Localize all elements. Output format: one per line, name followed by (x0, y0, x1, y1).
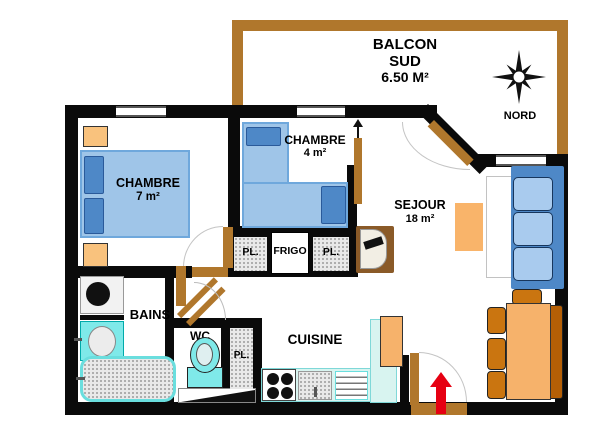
bedroom1-door (223, 227, 233, 268)
dining-table (506, 303, 551, 400)
kitchen-label: CUISINE (283, 333, 347, 348)
wall-bottom (65, 402, 568, 415)
bedroom2-area: 4 m² (283, 147, 347, 159)
nightstand (83, 243, 108, 267)
bathroom-shelf (80, 315, 124, 320)
stove-burner-icon (281, 373, 293, 385)
stove-burner-icon (267, 387, 279, 399)
kitchen-faucet-icon (314, 387, 317, 397)
sink-tap-icon (74, 338, 82, 341)
balcony-door-swing-arc (402, 122, 470, 170)
bedroom1-name: CHAMBRE (108, 177, 188, 191)
bathroom-sink (80, 321, 124, 361)
closet-corridor-label: PL. (228, 350, 255, 361)
toilet-bowl-inner (196, 343, 213, 366)
entrance-door (410, 353, 419, 405)
balcony-railing-left (232, 20, 243, 111)
stove-burner-icon (281, 387, 293, 399)
bedroom2-name: CHAMBRE (283, 134, 347, 147)
window-bedroom2 (297, 106, 345, 117)
toilet-bowl (190, 337, 220, 373)
bedroom1-area: 7 m² (108, 191, 188, 204)
bathtub (80, 356, 176, 402)
sofa-cushion (513, 247, 553, 281)
floor-plan: BALCON SUD 6.50 M² NORD PL. FRIGO PL. CH… (0, 0, 600, 424)
dining-chair (487, 371, 506, 399)
washing-machine (80, 276, 124, 314)
balcony-railing-right (557, 20, 568, 160)
sofa-cushion (513, 177, 553, 211)
bedroom2-door (354, 138, 362, 204)
entrance-arrow-shaft (436, 387, 446, 414)
kitchen-sink (298, 371, 332, 400)
window-living (496, 155, 546, 166)
corridor-door-jamb (176, 266, 186, 306)
dish-rack (335, 371, 368, 400)
dining-chair (487, 338, 506, 370)
sofa-cushion (513, 212, 553, 246)
balcony-railing-top (232, 20, 568, 31)
bathtub-tap-icon (76, 377, 85, 380)
tv-stand (356, 226, 394, 273)
tv-stand-top (360, 229, 387, 269)
bedroom2-door-arrow-icon (353, 119, 363, 127)
balcony-name-line2: SUD (330, 54, 480, 71)
pillow (246, 127, 281, 146)
balcony-label: BALCON SUD 6.50 M² (330, 37, 480, 85)
wall-left (65, 105, 78, 415)
bedroom2-label: CHAMBRE 4 m² (283, 134, 347, 159)
living-room-label: SEJOUR 18 m² (390, 199, 450, 225)
balcony-name-line1: BALCON (330, 37, 480, 54)
closet-hall-left-label: PL. (234, 247, 267, 259)
washing-machine-drum-icon (86, 282, 110, 306)
living-room-area: 18 m² (390, 213, 450, 225)
closet-hall-right-label: PL. (313, 247, 349, 259)
window-bedroom1 (116, 106, 166, 117)
compass-north-label: NORD (494, 110, 546, 122)
nightstand (83, 126, 108, 147)
wc-sliding-door (178, 388, 256, 403)
bedroom2-door-arrow-shaft (357, 126, 359, 138)
bedroom1-label: CHAMBRE 7 m² (108, 177, 188, 203)
entrance-arrow-head-icon (430, 372, 452, 387)
living-room-name: SEJOUR (390, 199, 450, 213)
stove (262, 369, 296, 401)
stove-burner-icon (267, 373, 279, 385)
wall-bedroom-divider (228, 105, 240, 230)
pillow (84, 156, 104, 194)
dining-chair (487, 307, 506, 334)
balcony-area: 6.50 M² (330, 70, 480, 85)
sink-basin (88, 326, 116, 357)
coffee-table (455, 203, 483, 251)
compass-rose-icon (492, 50, 546, 104)
fridge-label: FRIGO (270, 246, 310, 258)
bedroom1-door-sill (192, 267, 228, 277)
pillow (84, 198, 104, 234)
pillow (321, 186, 346, 224)
bathroom-label: BAINS (120, 308, 180, 322)
kitchen-cabinet (380, 316, 403, 367)
wc-sliding-door-wedge (181, 390, 255, 402)
